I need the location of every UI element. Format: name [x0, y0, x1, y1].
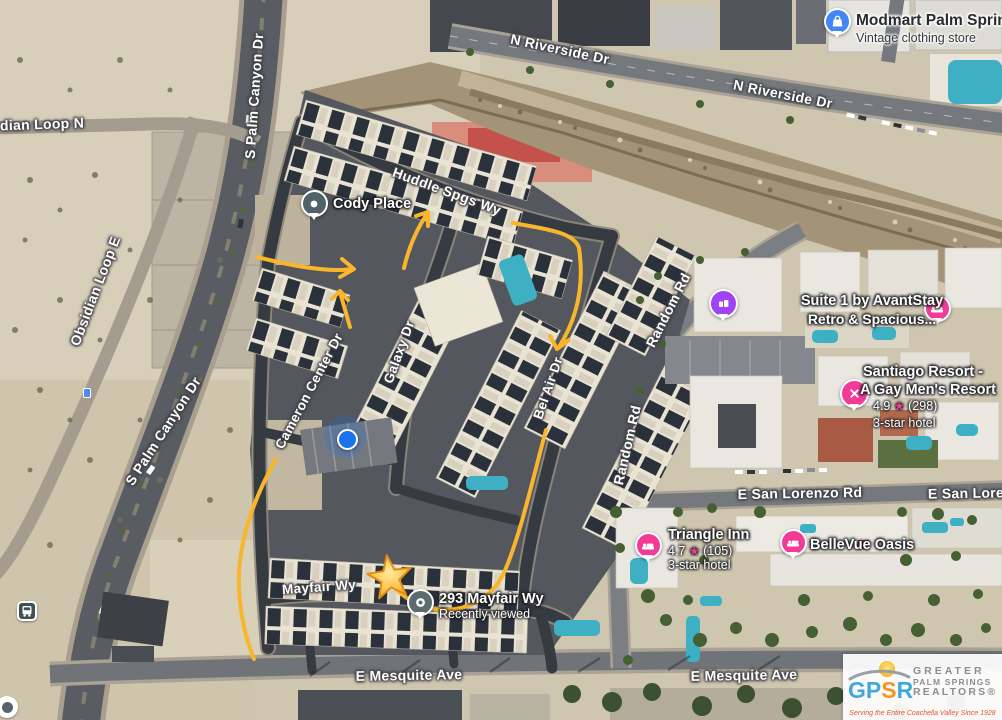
rating-star-icon: ★: [894, 399, 905, 413]
bus-stop-icon[interactable]: [17, 601, 37, 621]
poi-label-293-mayfair[interactable]: 293 Mayfair Wy: [439, 591, 544, 607]
bellevue-pin[interactable]: [780, 529, 807, 556]
attraction-pin[interactable]: [709, 289, 738, 318]
current-location-dot: [337, 429, 358, 450]
shopping-bag-icon: [831, 15, 844, 28]
resort-icon: [848, 387, 861, 400]
poi-category-triangle-inn: 3-star hotel: [668, 558, 731, 572]
street-label-obsidian-loop-n: dian Loop N: [0, 115, 84, 134]
satellite-map-canvas[interactable]: N Riverside Dr N Riverside Dr dian Loop …: [0, 0, 1002, 720]
bus-icon: [21, 605, 33, 617]
attraction-icon: [717, 297, 730, 310]
route-curve-belair-north: [513, 223, 581, 347]
rating-value: 4.7: [668, 544, 685, 558]
poi-label-triangle-inn[interactable]: Triangle Inn: [668, 527, 749, 543]
star-marker: [365, 552, 414, 599]
poi-dot-icon: [308, 198, 320, 210]
modmart-shopping-pin[interactable]: [824, 8, 851, 35]
cody-place-pin[interactable]: [301, 190, 328, 217]
poi-label-suite1[interactable]: Suite 1 by AvantStay: [801, 293, 943, 309]
gpsr-watermark: GPSR GREATER PALM SPRINGS REALTORS® Serv…: [843, 654, 1002, 720]
gpsr-tagline: Serving the Entire Coachella Valley Sinc…: [843, 709, 1002, 720]
poi-label-bellevue[interactable]: BelleVue Oasis: [810, 537, 914, 553]
poi-sublabel-suite1: Retro & Spacious...: [808, 311, 936, 327]
bed-icon: [641, 540, 655, 552]
street-label-mesquite-1: E Mesquite Ave: [356, 666, 463, 684]
poi-label-santiago-2[interactable]: A Gay Men's Resort: [860, 382, 996, 398]
poi-label-santiago-1[interactable]: Santiago Resort -: [863, 364, 983, 380]
gpsr-name: GREATER PALM SPRINGS REALTORS®: [911, 666, 998, 698]
street-label-mesquite-2: E Mesquite Ave: [691, 666, 798, 684]
route-arrow-west: [257, 257, 352, 270]
recently-viewed-pin[interactable]: [407, 589, 434, 616]
route-curve-to-star: [397, 430, 546, 610]
rating-value: 4.9: [873, 399, 890, 413]
triangle-inn-pin[interactable]: [635, 532, 662, 559]
review-count: (105): [703, 544, 732, 558]
route-arrow-huddle: [404, 214, 427, 268]
poi-note-293-mayfair: Recently viewed: [439, 607, 530, 621]
poi-category-santiago: 3-star hotel: [873, 416, 936, 430]
poi-label-modmart[interactable]: Modmart Palm Springs: [856, 12, 1002, 30]
donut-icon: [414, 596, 427, 609]
street-label-san-lorenzo-clipped: E San Lore: [928, 484, 1002, 501]
poi-rating-triangle-inn: 4.7 ★ (105): [668, 544, 732, 558]
review-count: (298): [908, 399, 937, 413]
poi-label-cody-place[interactable]: Cody Place: [333, 196, 411, 212]
gpsr-logo: GPSR: [847, 660, 911, 706]
poi-rating-santiago: 4.9 ★ (298): [873, 399, 937, 413]
small-transit-icon[interactable]: [83, 388, 91, 398]
street-label-san-lorenzo: E San Lorenzo Rd: [738, 484, 863, 502]
gpsr-acronym: GPSR: [848, 677, 913, 704]
poi-sublabel-modmart: Vintage clothing store: [856, 31, 976, 45]
rating-star-icon: ★: [689, 544, 700, 558]
route-curve-west: [239, 459, 276, 659]
bed-icon: [786, 537, 800, 549]
